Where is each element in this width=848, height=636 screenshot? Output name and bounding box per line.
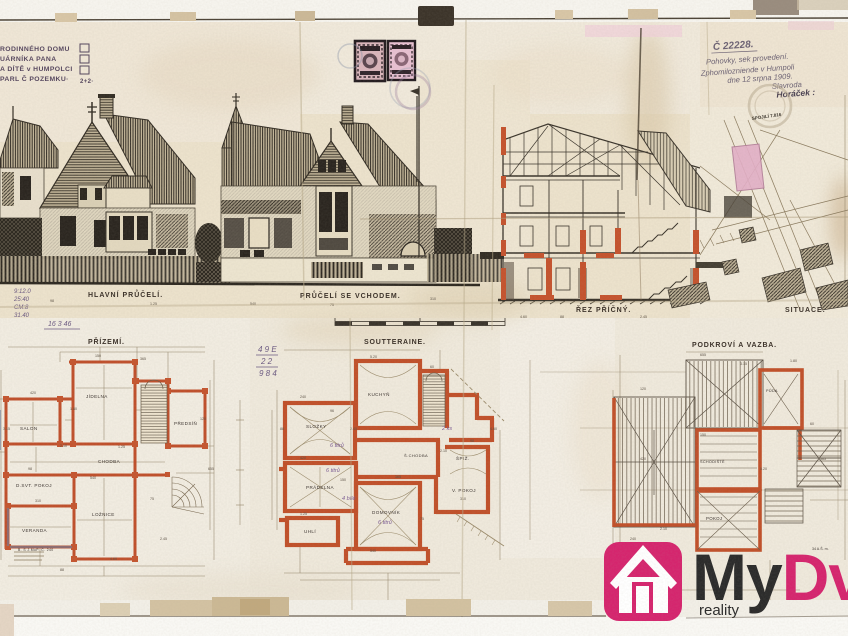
svg-text:1.80: 1.80 [790,359,797,363]
svg-text:98: 98 [50,299,54,303]
svg-text:PŮDA: PŮDA [766,388,778,393]
svg-text:2+2·: 2+2· [80,79,94,85]
svg-text:240: 240 [630,537,636,541]
svg-text:ŘEZ PŘÍČNÝ.: ŘEZ PŘÍČNÝ. [576,305,631,314]
svg-text:98: 98 [28,467,32,471]
svg-text:2.10: 2.10 [660,527,667,531]
svg-text:Š.CHODBA: Š.CHODBA [404,453,428,458]
svg-text:420: 420 [30,391,36,395]
svg-text:120: 120 [200,417,206,421]
svg-text:PRÁDELNA: PRÁDELNA [306,484,334,490]
svg-text:POKOJ: POKOJ [706,516,722,521]
svg-text:V. POKOJ: V. POKOJ [452,488,476,493]
svg-text:2.45: 2.45 [160,537,167,541]
svg-text:SLOŽKY: SLOŽKY [306,422,327,429]
svg-text:150: 150 [95,354,101,358]
svg-text:LOŽNICE: LOŽNICE [92,510,115,517]
svg-text:5.20: 5.20 [370,355,377,359]
svg-text:16 3 46: 16 3 46 [48,321,71,328]
svg-text:3.15: 3.15 [740,362,747,366]
svg-text:9:12.0: 9:12.0 [14,289,31,295]
svg-text:1.80: 1.80 [70,407,77,411]
svg-text:2.10: 2.10 [440,449,447,453]
svg-text:310: 310 [35,499,41,503]
svg-text:25:40: 25:40 [13,297,30,303]
svg-text:PŘÍZEMÍ.: PŘÍZEMÍ. [88,337,125,346]
svg-text:540: 540 [90,476,96,480]
svg-text:CHODBA: CHODBA [98,459,121,464]
svg-text:96: 96 [330,409,334,413]
svg-text:2.10: 2.10 [60,444,67,448]
svg-text:4.60: 4.60 [490,427,497,431]
svg-text:UHLÍ: UHLÍ [304,528,316,534]
svg-text:75: 75 [150,497,154,501]
svg-text:240: 240 [300,395,306,399]
svg-text:310: 310 [430,297,436,301]
svg-text:88: 88 [280,427,284,431]
svg-text:SOUTTERAINE.: SOUTTERAINE. [364,339,426,346]
svg-text:reality: reality [699,602,740,619]
svg-text:DOMOVNÍK: DOMOVNÍK [372,509,401,515]
svg-text:SITUACE.: SITUACE. [785,307,826,314]
svg-text:365: 365 [140,357,146,361]
svg-text:540: 540 [370,549,376,553]
svg-text:9 8 4: 9 8 4 [259,369,277,378]
svg-text:6 titrů: 6 titrů [326,467,340,474]
svg-text:2.45: 2.45 [640,315,647,319]
svg-text:655: 655 [700,353,706,357]
svg-text:4.60: 4.60 [520,315,527,319]
svg-text:88: 88 [60,568,64,572]
svg-text:RODINNÉHO DOMU: RODINNÉHO DOMU [0,44,70,53]
svg-text:98: 98 [470,439,474,443]
svg-text:PARL Č POZEMKU·: PARL Č POZEMKU· [0,74,69,83]
svg-text:4.60: 4.60 [110,557,117,561]
svg-text:SALON: SALON [20,426,38,431]
svg-text:1.25: 1.25 [300,512,307,516]
svg-text:1.25: 1.25 [118,445,125,449]
svg-text:60: 60 [430,365,434,369]
svg-text:420: 420 [300,456,306,460]
svg-text:31.40: 31.40 [14,313,30,319]
svg-text:4 bílé: 4 bílé [342,496,355,502]
svg-text:365: 365 [820,457,826,461]
svg-text:KUCHYŇ: KUCHYŇ [368,391,390,397]
svg-text:PODKROVÍ A VAZBA.: PODKROVÍ A VAZBA. [692,340,777,349]
svg-text:365: 365 [395,475,401,479]
svg-text:60: 60 [810,422,814,426]
svg-text:VERANDA: VERANDA [22,528,48,533]
svg-text:2 ks: 2 ks [441,426,452,432]
svg-text:150: 150 [340,478,346,482]
svg-text:UÁRNÍKA PANA: UÁRNÍKA PANA [0,54,57,63]
svg-text:D.SVT. POKOJ: D.SVT. POKOJ [16,483,52,488]
svg-text:PŘEDSÍŇ: PŘEDSÍŇ [174,419,197,426]
svg-text:120: 120 [640,387,646,391]
svg-text:4 9 E: 4 9 E [258,345,277,354]
svg-text:75: 75 [420,517,424,521]
svg-text:2 2: 2 2 [260,357,273,366]
svg-text:SCHODIŠTĚ: SCHODIŠTĚ [700,459,725,464]
svg-text:JÍDELNA: JÍDELNA [86,393,108,399]
svg-text:420: 420 [640,457,646,461]
svg-text:3.15: 3.15 [3,427,10,431]
svg-text:655: 655 [208,467,214,471]
svg-text:6 titrů: 6 titrů [330,442,344,449]
svg-text:6 titrů: 6 titrů [378,519,392,526]
svg-text:A DÍTĚ v HUMPOLCI: A DÍTĚ v HUMPOLCI [0,64,73,73]
svg-text:5.20: 5.20 [760,467,767,471]
svg-text:88: 88 [560,315,564,319]
svg-text:150: 150 [700,433,706,437]
